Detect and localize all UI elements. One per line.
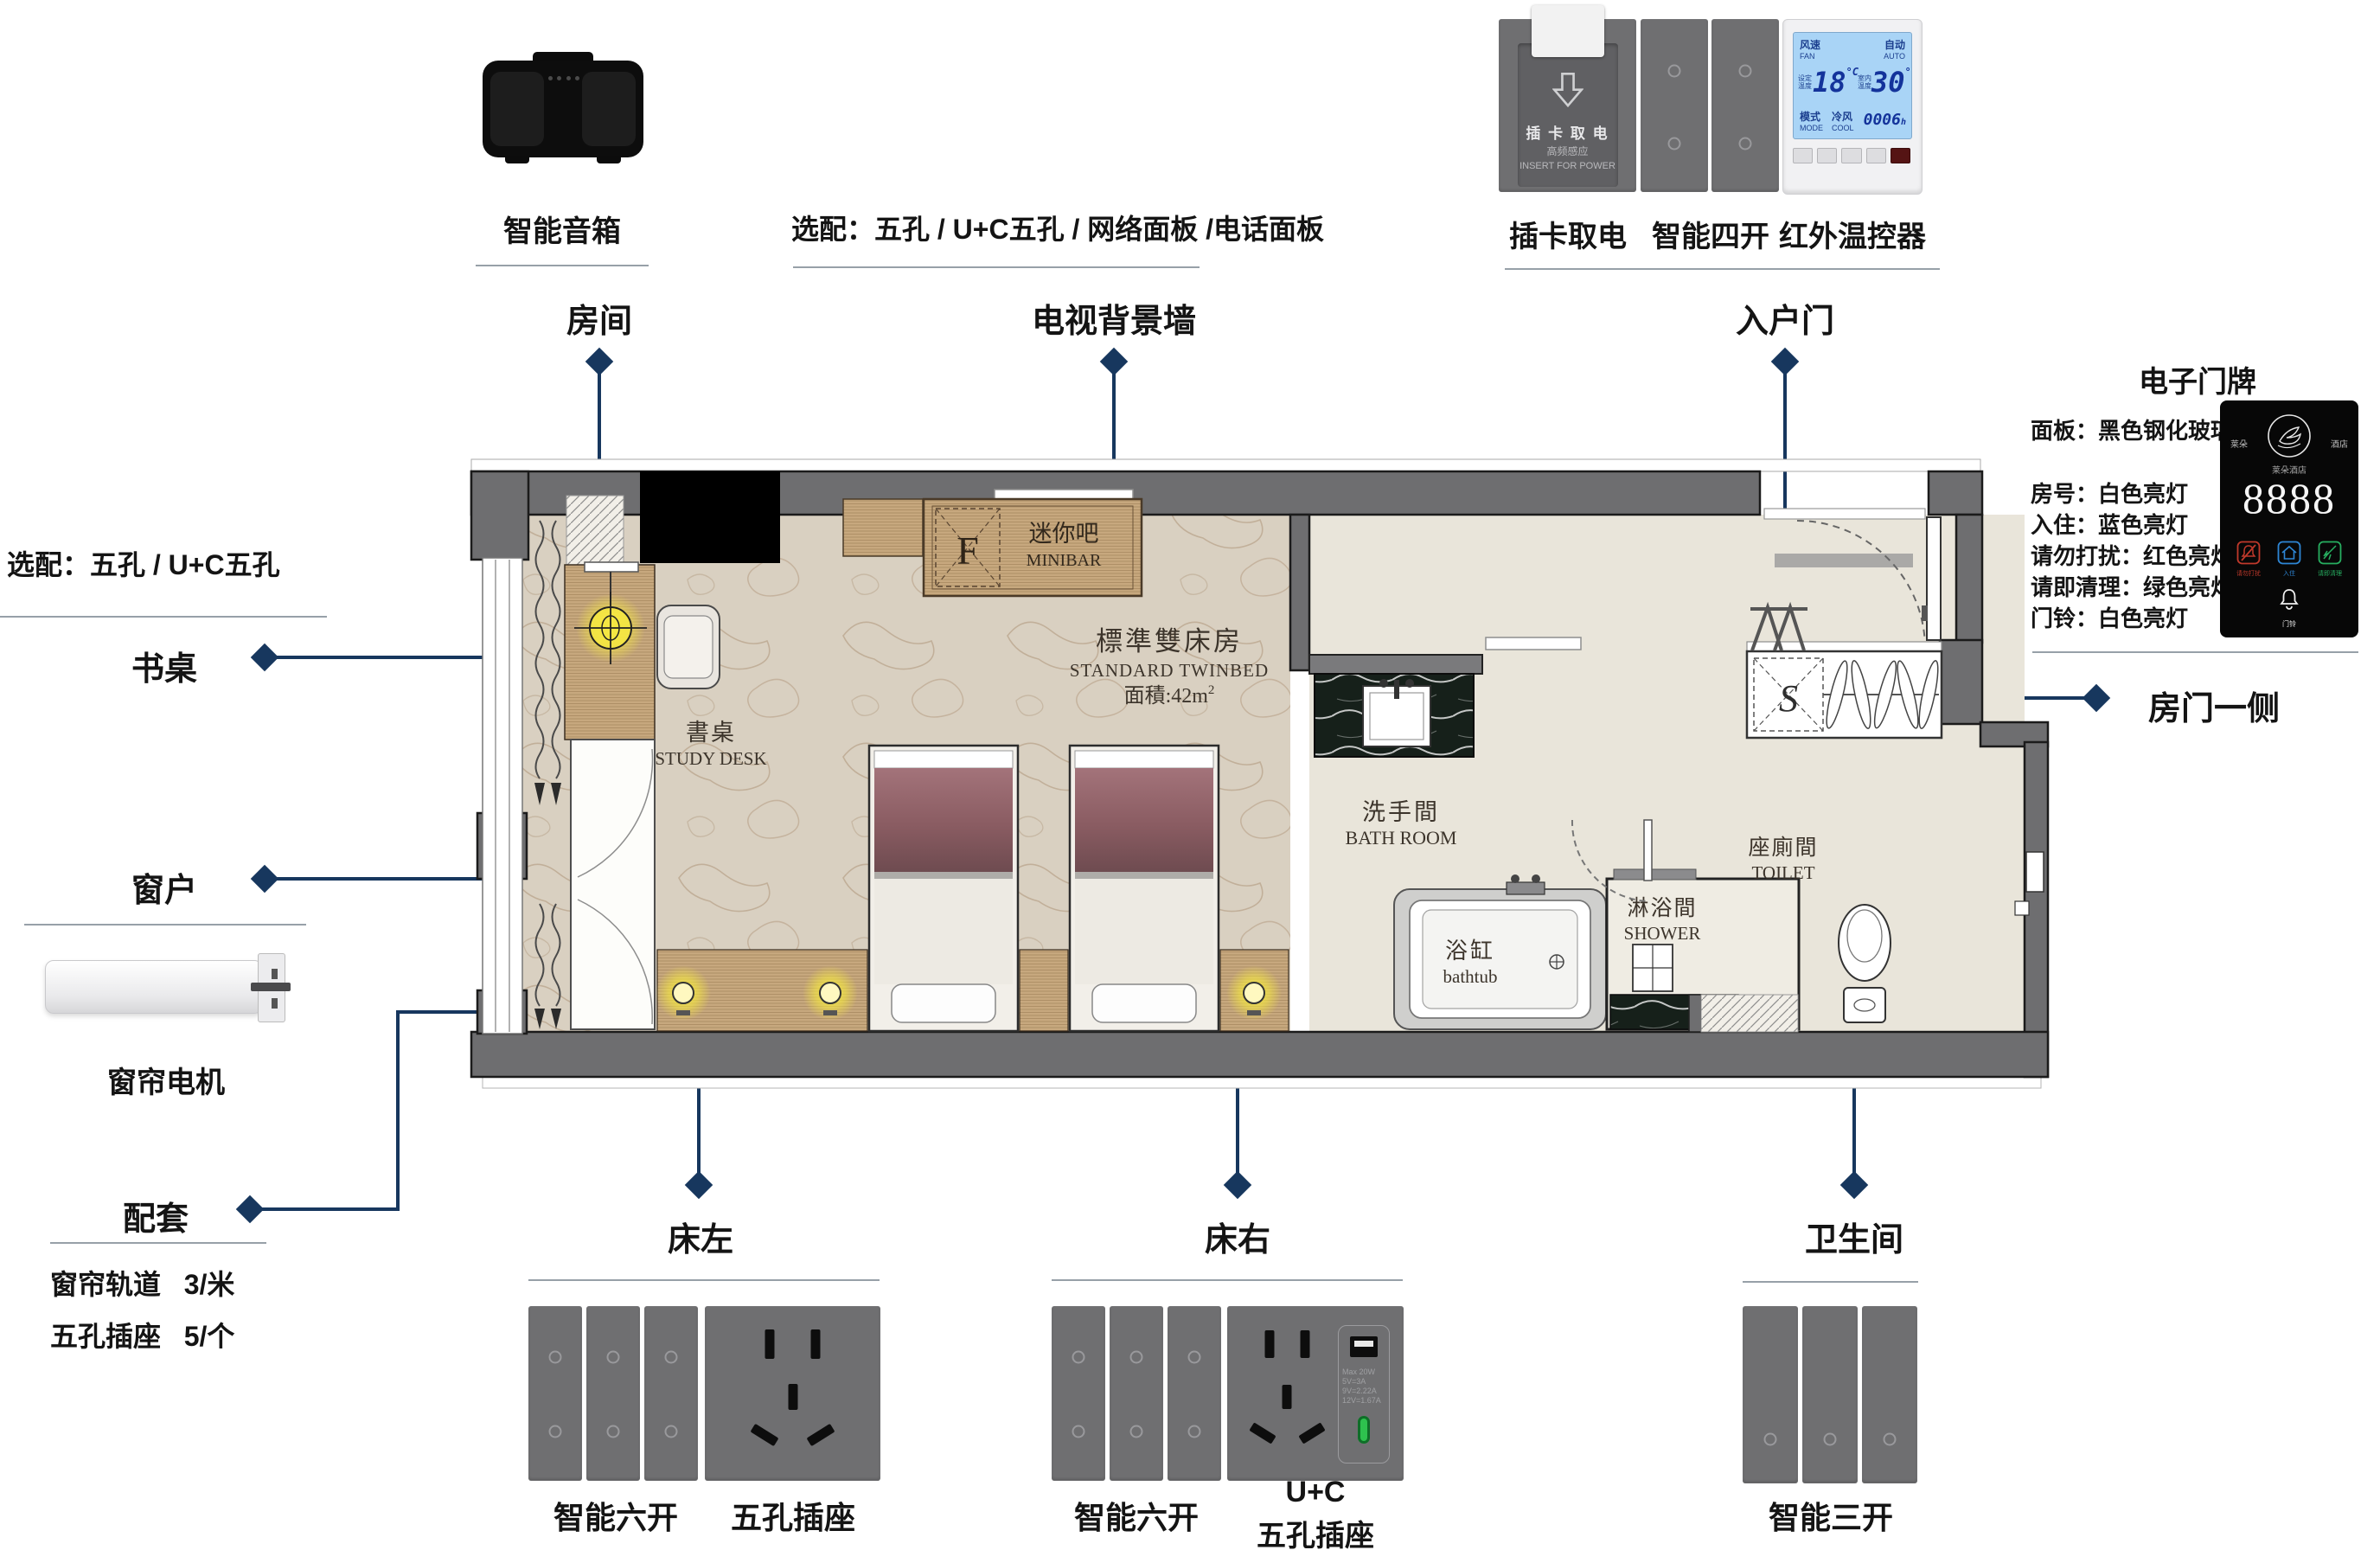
- desk-label-cn: 書桌: [686, 720, 736, 746]
- closet-lower-left: [571, 740, 655, 1029]
- window-left: [483, 558, 522, 1034]
- room-title-cn: 標準雙床房: [1096, 626, 1243, 657]
- minibar-cabinet: F 迷你吧 MINIBAR: [924, 490, 1142, 596]
- minibar-label-cn: 迷你吧: [1029, 521, 1099, 547]
- floor-plan: F 迷你吧 MINIBAR: [0, 0, 2380, 1550]
- smart-speaker: [483, 61, 643, 157]
- hotel-room-smart-devices-diagram: F 迷你吧 MINIBAR: [0, 0, 2380, 1550]
- minibar-label-en: MINIBAR: [1027, 551, 1102, 570]
- speaker-foot-right: [597, 156, 621, 163]
- speaker-buttons: [548, 76, 579, 81]
- fridge-symbol: F: [956, 528, 979, 573]
- speaker-grille-left: [490, 72, 544, 146]
- shower-label-cn: 淋浴間: [1627, 896, 1697, 920]
- room-area: 面積:42m2: [1124, 683, 1215, 708]
- bathroom-label-cn: 洗手間: [1362, 799, 1440, 825]
- bed-right: [1070, 746, 1219, 1031]
- shower-label-en: SHOWER: [1624, 923, 1701, 944]
- bed-left: [869, 746, 1018, 1031]
- bathtub: 浴缸 bathtub: [1394, 874, 1606, 1029]
- toilet-label-cn: 座廁間: [1748, 836, 1818, 860]
- toilet-label-en: TOILET: [1751, 862, 1814, 883]
- bathtub-label-cn: 浴缸: [1445, 938, 1495, 964]
- hatched-niche: [566, 496, 624, 565]
- desk-label-en: STUDY DESK: [655, 748, 766, 769]
- tv-console: [843, 499, 923, 556]
- room-title-en: STANDARD TWINBED: [1070, 660, 1269, 681]
- tv-block: [640, 471, 780, 563]
- wardrobe-letter: S: [1779, 677, 1798, 720]
- bathroom-label-en: BATH ROOM: [1346, 827, 1457, 849]
- bathtub-label-en: bathtub: [1443, 966, 1498, 987]
- speaker-grille-right: [582, 72, 636, 146]
- speaker-foot-left: [505, 156, 529, 163]
